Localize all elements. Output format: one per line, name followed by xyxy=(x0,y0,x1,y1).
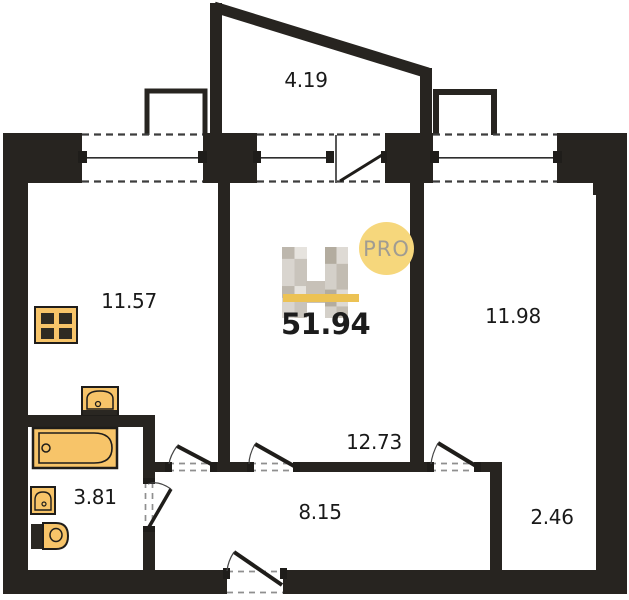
logo-accent-bar xyxy=(283,294,359,302)
balcony-door xyxy=(336,135,382,183)
ledge-outline-right xyxy=(436,92,494,135)
bathroom-door xyxy=(143,478,171,532)
area-label-storage: 2.46 xyxy=(530,505,573,529)
bedroom-door xyxy=(427,443,481,472)
floor-plan: 4.19 11.57 12.73 11.98 8.15 3.81 2.46 PR… xyxy=(0,0,629,600)
area-label-bedroom: 11.98 xyxy=(485,304,541,328)
toilet-icon xyxy=(31,523,68,549)
area-label-living: 12.73 xyxy=(346,430,402,454)
washbasin-icon xyxy=(31,487,55,514)
pro-badge-label: PRO xyxy=(363,237,410,261)
entrance-door xyxy=(223,552,287,594)
pro-badge: PRO xyxy=(359,222,414,275)
area-label-balcony: 4.19 xyxy=(284,68,327,92)
windows xyxy=(78,135,562,184)
total-area-label: 51.94 xyxy=(281,307,370,341)
area-label-bathroom: 3.81 xyxy=(73,485,116,509)
stove-icon xyxy=(35,307,77,343)
living-room-door xyxy=(247,444,300,472)
area-label-kitchen: 11.57 xyxy=(101,289,157,313)
bathtub-icon xyxy=(33,428,117,468)
ledge-outline-left xyxy=(147,91,205,135)
kitchen-sink-icon xyxy=(82,387,118,415)
area-label-hallway: 8.15 xyxy=(298,500,341,524)
kitchen-door xyxy=(165,446,217,472)
